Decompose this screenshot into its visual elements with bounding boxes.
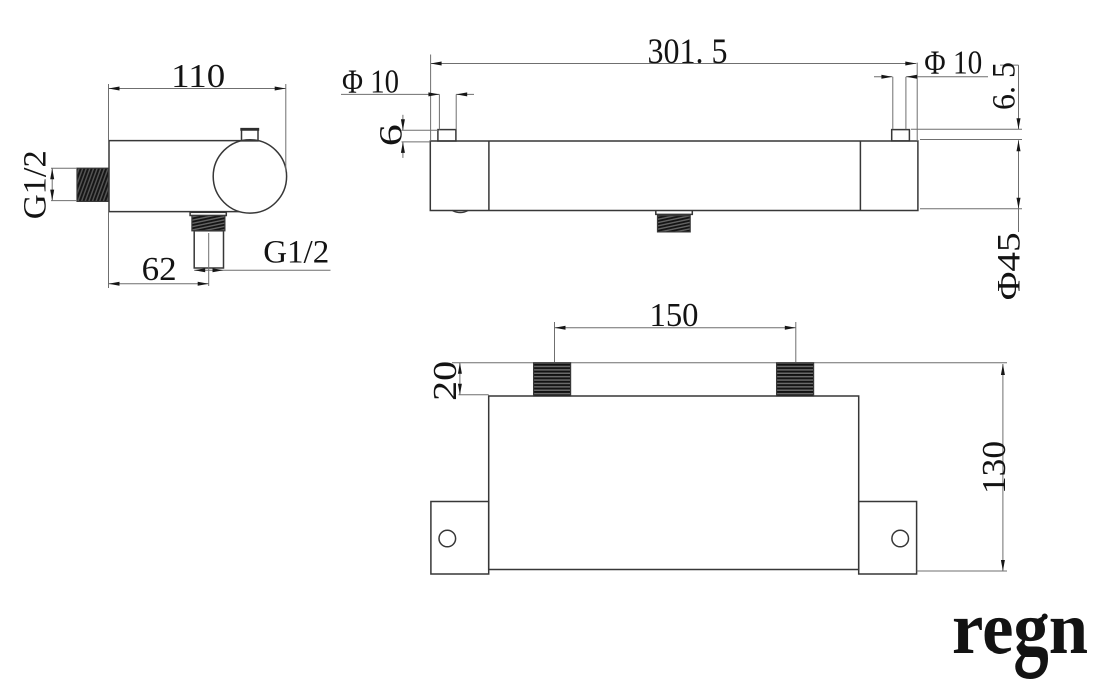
svg-text:6. 5: 6. 5	[986, 62, 1022, 110]
svg-text:110: 110	[171, 58, 225, 95]
svg-text:G1/2: G1/2	[18, 150, 54, 219]
svg-text:Φ 10: Φ 10	[924, 45, 982, 82]
svg-text:Φ45: Φ45	[991, 232, 1027, 300]
svg-text:150: 150	[650, 297, 699, 334]
svg-text:62: 62	[142, 251, 177, 288]
svg-text:Φ 10: Φ 10	[342, 64, 399, 101]
svg-text:G1/2: G1/2	[263, 235, 329, 271]
svg-text:20: 20	[427, 361, 464, 401]
svg-text:301. 5: 301. 5	[648, 31, 728, 71]
svg-text:130: 130	[976, 441, 1013, 494]
svg-text:6: 6	[373, 124, 409, 146]
